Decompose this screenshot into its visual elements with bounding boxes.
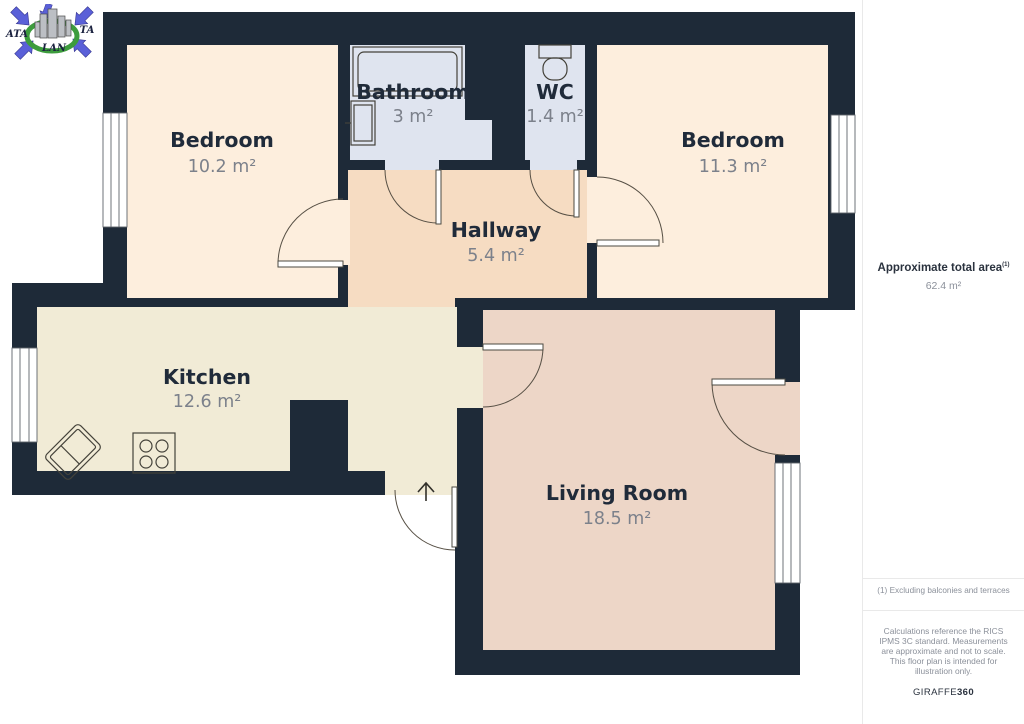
room-living <box>483 310 775 650</box>
area-living-room: 18.5 m² <box>583 509 652 529</box>
disclaimer: Calculations reference the RICS IPMS 3C … <box>876 626 1011 676</box>
room-kitchen <box>37 307 457 495</box>
area-bathroom: 3 m² <box>393 107 434 127</box>
total-area-value: 62.4 m² <box>863 280 1024 292</box>
divider <box>863 610 1024 611</box>
area-hallway: 5.4 m² <box>467 246 524 266</box>
label-bathroom: Bathroom <box>356 80 470 104</box>
info-sidebar: Approximate total area(1) 62.4 m² (1) Ex… <box>862 0 1024 724</box>
divider <box>863 578 1024 579</box>
label-kitchen: Kitchen <box>163 365 251 389</box>
window-kitchen <box>12 348 37 442</box>
brand-suffix: 360 <box>957 687 974 698</box>
floorplan-page: Bedroom 10.2 m² Bathroom 3 m² WC 1.4 m² … <box>0 0 1024 724</box>
brand-name: GIRAFFE <box>913 687 957 698</box>
label-hallway: Hallway <box>451 218 542 242</box>
label-bedroom-1: Bedroom <box>170 128 274 152</box>
total-area-footnote-marker: (1) <box>1002 262 1009 268</box>
total-area-box: Approximate total area(1) 62.4 m² <box>863 262 1024 292</box>
window-living <box>775 463 800 583</box>
area-wc: 1.4 m² <box>526 107 583 127</box>
logo-text-left: ATA <box>5 29 28 40</box>
total-area-label: Approximate total area(1) <box>863 262 1024 274</box>
label-wc: WC <box>536 80 574 104</box>
brand-logo: GIRAFFE360 <box>863 687 1024 698</box>
area-kitchen: 12.6 m² <box>173 392 242 412</box>
footnote: (1) Excluding balconies and terraces <box>863 586 1024 595</box>
agency-logo: ATA TA LAN <box>2 4 102 62</box>
label-living-room: Living Room <box>546 481 688 505</box>
window-bedroom-1 <box>103 113 127 227</box>
area-bedroom-1: 10.2 m² <box>188 157 257 177</box>
logo-text-right: TA <box>80 25 95 36</box>
logo-text-bottom: LAN <box>41 43 67 54</box>
area-bedroom-2: 11.3 m² <box>699 157 768 177</box>
label-bedroom-2: Bedroom <box>681 128 785 152</box>
window-bedroom-2 <box>831 115 855 213</box>
total-area-label-text: Approximate total area <box>878 262 1003 274</box>
